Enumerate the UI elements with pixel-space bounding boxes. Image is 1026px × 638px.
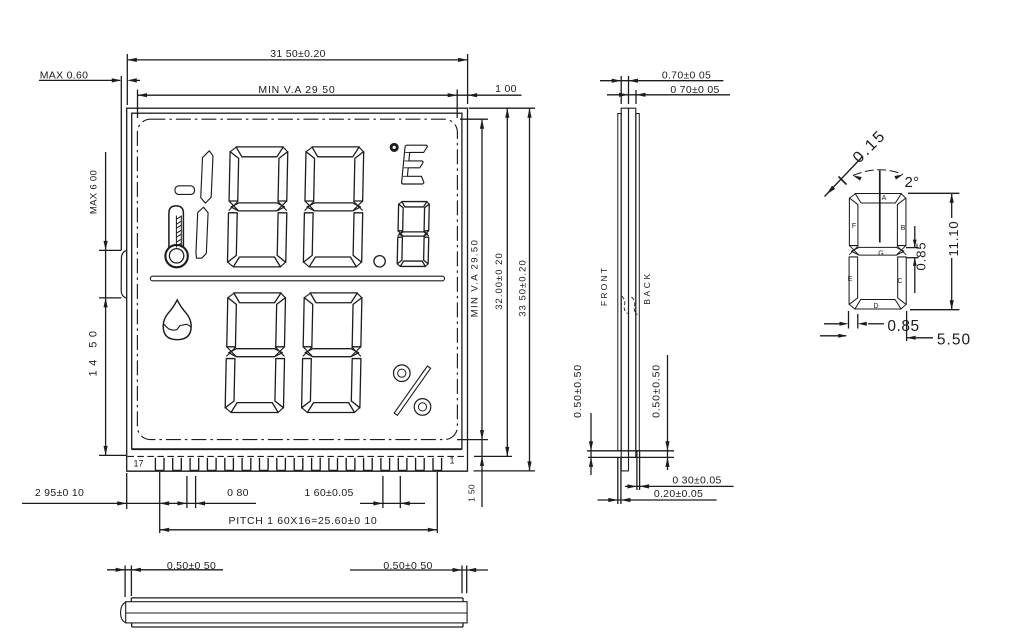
svg-text:0.85: 0.85 [914, 242, 929, 271]
svg-text:F: F [852, 223, 856, 230]
svg-text:0.50±0.50: 0.50±0.50 [651, 364, 663, 418]
svg-text:PITCH 1 60X16=25.60±0 10: PITCH 1 60X16=25.60±0 10 [229, 515, 378, 527]
svg-text:C: C [897, 278, 902, 285]
svg-text:0.50±0 50: 0.50±0 50 [167, 560, 216, 572]
svg-text:2°: 2° [905, 174, 920, 191]
svg-text:1 60±0.05: 1 60±0.05 [304, 487, 353, 499]
svg-text:MIN V.A 29 50: MIN V.A 29 50 [258, 84, 335, 96]
svg-text:E: E [848, 276, 853, 283]
svg-text:0.50±0 50: 0.50±0 50 [383, 560, 432, 572]
svg-text:A: A [882, 195, 887, 202]
svg-text:0.70±0 05: 0.70±0 05 [662, 70, 711, 82]
svg-text:31 50±0.20: 31 50±0.20 [270, 48, 325, 60]
svg-text:1 00: 1 00 [495, 83, 517, 95]
svg-text:MAX 0.60: MAX 0.60 [40, 70, 89, 82]
svg-text:1: 1 [449, 456, 454, 466]
svg-text:MIN V.A 29.50: MIN V.A 29.50 [470, 239, 481, 318]
svg-text:D: D [873, 303, 878, 310]
svg-text:0 80: 0 80 [227, 487, 249, 499]
svg-text:17: 17 [133, 459, 143, 469]
svg-text:32.00±0 20: 32.00±0 20 [494, 252, 505, 309]
svg-text:33 50±0.20: 33 50±0.20 [518, 259, 529, 316]
svg-text:0.85: 0.85 [887, 318, 919, 335]
svg-text:2 95±0 10: 2 95±0 10 [35, 487, 84, 499]
svg-text:BACK: BACK [642, 271, 652, 305]
svg-text:1 50: 1 50 [467, 484, 477, 502]
svg-text:11.10: 11.10 [946, 220, 961, 256]
svg-text:FRONT: FRONT [599, 266, 609, 306]
svg-text:5.50: 5.50 [937, 332, 971, 349]
svg-text:14 50: 14 50 [88, 326, 100, 376]
svg-text:G: G [878, 251, 883, 258]
svg-text:0.20±0.05: 0.20±0.05 [654, 488, 703, 500]
svg-text:0.50±0.50: 0.50±0.50 [572, 364, 584, 418]
svg-text:B: B [901, 225, 906, 232]
svg-text:0 70±0 05: 0 70±0 05 [670, 84, 719, 96]
svg-text:MAX 6 00: MAX 6 00 [89, 170, 100, 214]
svg-text:0 30±0.05: 0 30±0.05 [672, 474, 721, 486]
